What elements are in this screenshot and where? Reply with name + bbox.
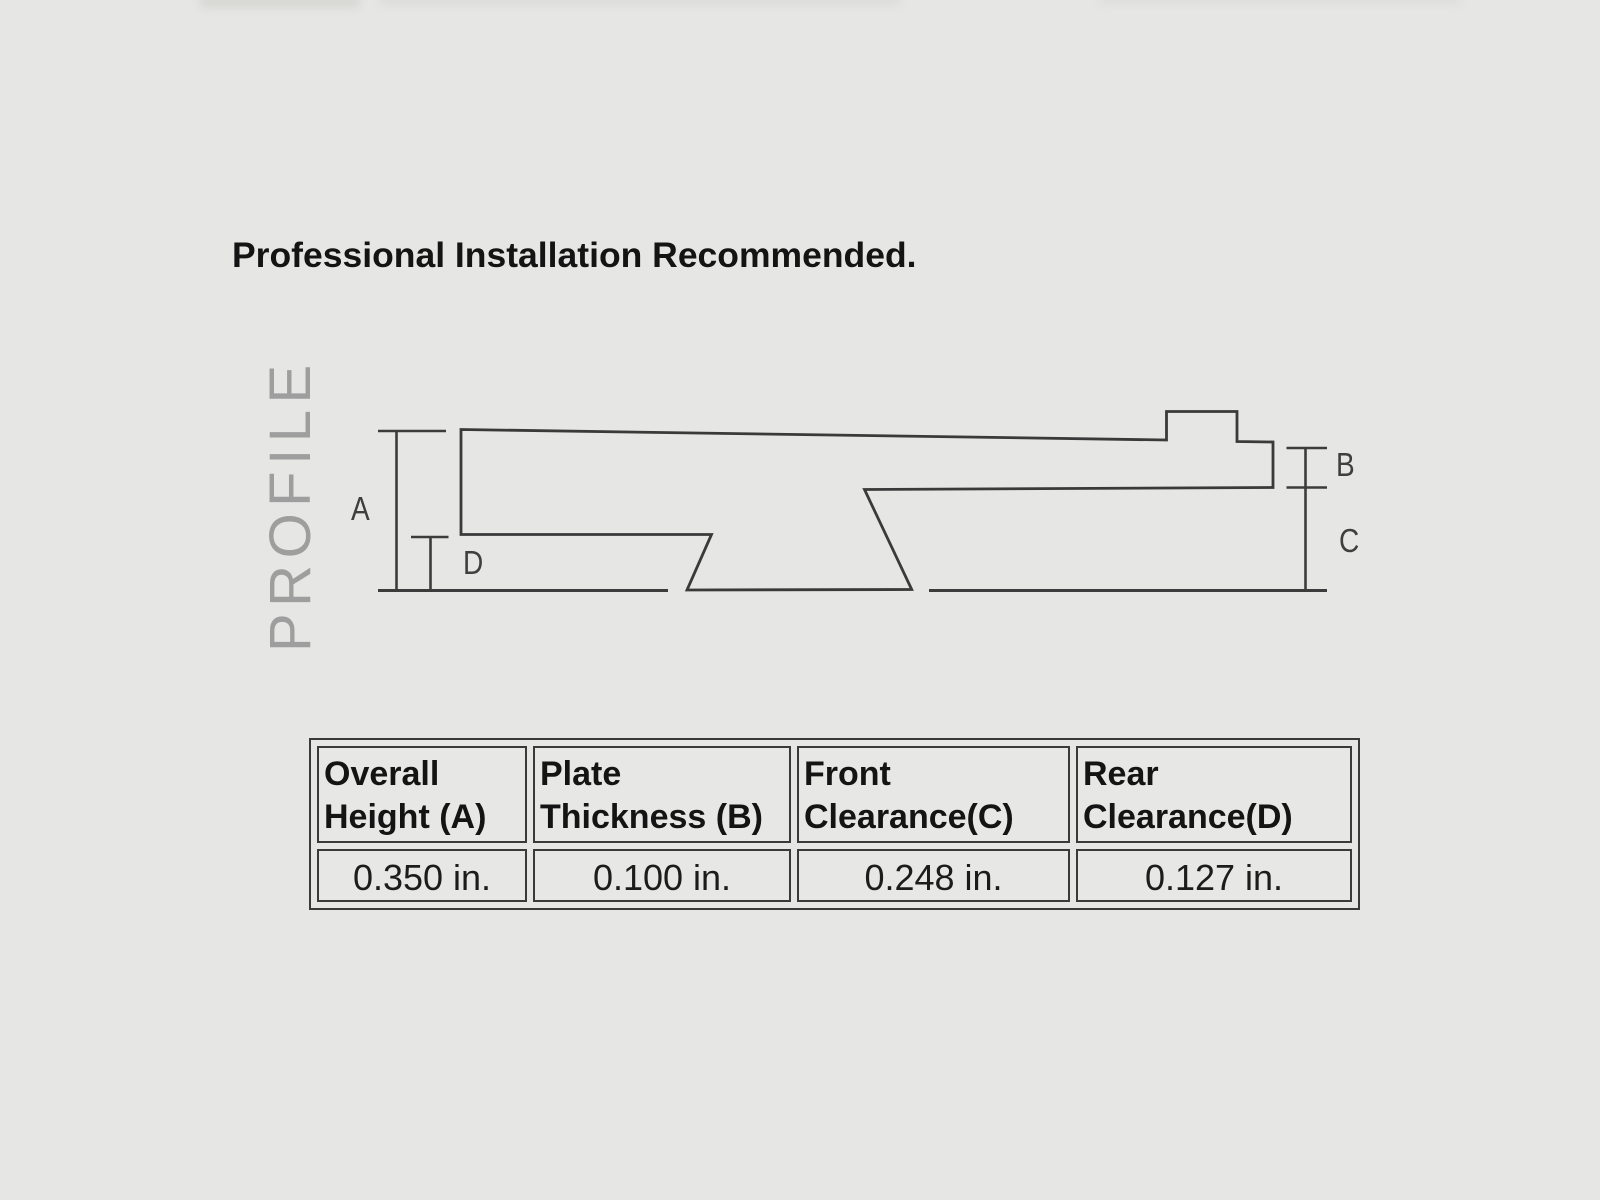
svg-text:D: D <box>463 545 483 582</box>
svg-text:C: C <box>1339 523 1359 560</box>
svg-text:PROFILE: PROFILE <box>258 358 323 652</box>
svg-text:A: A <box>351 491 370 528</box>
svg-text:B: B <box>1336 447 1355 484</box>
